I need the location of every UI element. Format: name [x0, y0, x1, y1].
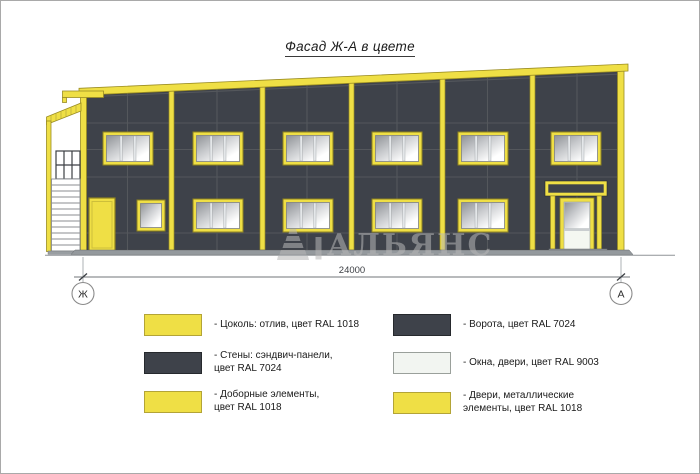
window — [372, 132, 422, 165]
axis-marker-right: А — [610, 283, 632, 305]
stair-tower — [47, 103, 85, 254]
legend-swatch-metal-doors — [393, 392, 451, 414]
watermark-text: АЛЬЯНС — [327, 228, 493, 263]
legend-label: - Стены: сэндвич-панели, — [214, 350, 333, 363]
entrance — [545, 181, 607, 254]
service-door — [89, 198, 115, 251]
stair-railing — [56, 151, 80, 179]
drawing-title-text: Фасад Ж-А в цвете — [285, 39, 415, 57]
legend-swatch-windows — [393, 352, 451, 374]
window-small — [137, 200, 165, 231]
legend-swatch-gates — [393, 314, 451, 336]
legend-label: элементы, цвет RAL 1018 — [463, 403, 582, 416]
legend-item-metal-doors: - Двери, металлические элементы, цвет RA… — [393, 390, 582, 415]
legend-label: - Двери, металлические — [463, 390, 582, 403]
legend-item-plinth: - Цоколь: отлив, цвет RAL 1018 — [144, 314, 359, 336]
legend-swatch-walls — [144, 352, 202, 374]
window — [551, 132, 601, 165]
axis-right-label: А — [617, 289, 624, 301]
legend-label: цвет RAL 7024 — [214, 363, 333, 376]
canopy-post — [551, 196, 556, 249]
window — [193, 132, 243, 165]
dimension-label: 24000 — [339, 265, 365, 276]
window — [283, 132, 333, 165]
window — [103, 132, 153, 165]
legend-item-gates: - Ворота, цвет RAL 7024 — [393, 314, 575, 336]
window — [283, 199, 333, 232]
legend-label: - Окна, двери, цвет RAL 9003 — [463, 357, 599, 370]
legend-swatch-plinth — [144, 314, 202, 336]
legend-item-trim: - Доборные элементы, цвет RAL 1018 — [144, 389, 319, 414]
window — [458, 132, 508, 165]
legend-label: - Доборные элементы, — [214, 389, 319, 402]
legend-swatch-trim — [144, 391, 202, 413]
axis-marker-left: Ж — [72, 283, 94, 305]
legend-label: - Цоколь: отлив, цвет RAL 1018 — [214, 319, 359, 332]
stair-post — [47, 121, 52, 252]
legend-label: - Ворота, цвет RAL 7024 — [463, 319, 575, 332]
window — [193, 199, 243, 232]
drawing-sheet: Фасад Ж-А в цвете — [0, 0, 700, 474]
canopy-post — [597, 196, 602, 249]
legend-item-windows: - Окна, двери, цвет RAL 9003 — [393, 352, 599, 374]
legend-label: цвет RAL 1018 — [214, 402, 319, 415]
building-elevation: АЛЬЯНС 24000 Ж А — [1, 56, 700, 311]
drawing-title: Фасад Ж-А в цвете — [1, 38, 699, 56]
stairs — [48, 179, 84, 254]
legend-item-walls: - Стены: сэндвич-панели, цвет RAL 7024 — [144, 350, 333, 375]
axis-left-label: Ж — [78, 289, 88, 301]
